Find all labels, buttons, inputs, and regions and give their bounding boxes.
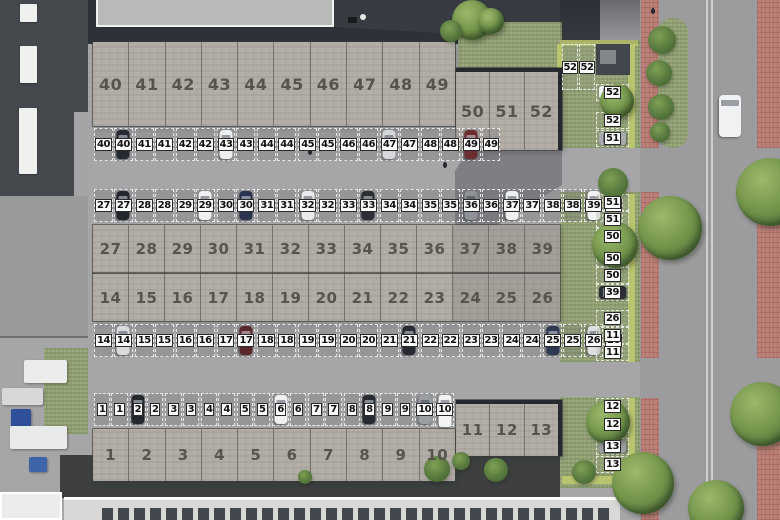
- parking-spot-label: 32: [319, 199, 336, 212]
- unit-label: 32: [280, 240, 302, 258]
- parking-spot-45: 45: [298, 128, 317, 161]
- parking-row-14-26: 1414151516161717181819192020212122222323…: [93, 322, 560, 359]
- unit-label: 38: [496, 240, 518, 258]
- unit-label: 19: [280, 289, 302, 307]
- parking-spot-label: 13: [604, 458, 621, 471]
- solar-panels: [102, 508, 614, 520]
- parking-spot-label: 39: [604, 286, 621, 299]
- unit-label: 28: [136, 240, 158, 258]
- unit-label: 8: [359, 446, 370, 464]
- unit-3: 3: [165, 429, 201, 481]
- parking-spot-label: 23: [483, 334, 500, 347]
- parking-spot-17: 17: [217, 324, 236, 357]
- parking-spot-31: 31: [257, 189, 276, 222]
- unit-21: 21: [344, 274, 380, 321]
- parking-pair-40: 4040: [93, 126, 134, 163]
- parking-spot-label: 30: [237, 199, 254, 212]
- parking-spot-35: 35: [421, 189, 440, 222]
- parking-spot-50: 50: [596, 267, 629, 284]
- parking-spot-label: 28: [136, 199, 153, 212]
- parking-pair-20: 2020: [338, 322, 379, 359]
- parking-spot-5: 5: [254, 393, 270, 426]
- parking-spot-label: 47: [401, 138, 418, 151]
- unit-36: 36: [416, 225, 452, 273]
- unit-label: 17: [208, 289, 230, 307]
- pavement-strip-left: [74, 112, 88, 196]
- parking-spot-label: 27: [95, 199, 112, 212]
- unit-5: 5: [237, 429, 273, 481]
- parking-spot-label: 43: [237, 138, 254, 151]
- parking-pair-7: 77: [307, 391, 343, 428]
- unit-label: 23: [424, 289, 446, 307]
- parking-pair-42: 4242: [175, 126, 216, 163]
- parking-spot-16: 16: [176, 324, 195, 357]
- parking-spot-10: 10: [435, 393, 454, 426]
- parking-spot-52: 52: [562, 44, 578, 90]
- unit-2: 2: [128, 429, 164, 481]
- parking-spot-label: 36: [463, 199, 480, 212]
- parking-pair-25: 2525: [542, 322, 583, 359]
- parking-spot-label: 47: [381, 138, 398, 151]
- parking-pair-44: 4444: [256, 126, 297, 163]
- parking-spot-label: 5: [257, 403, 267, 416]
- parking-spot-label: 42: [197, 138, 214, 151]
- unit-label: 48: [389, 75, 412, 94]
- unit-34: 34: [344, 225, 380, 273]
- parking-spot-5: 5: [237, 393, 253, 426]
- parking-spot-14: 14: [114, 324, 133, 357]
- parking-spot-19: 19: [318, 324, 337, 357]
- parking-spot-7: 7: [325, 393, 341, 426]
- unit-label: 49: [426, 75, 449, 94]
- parking-spot-47: 47: [400, 128, 419, 161]
- parking-spot-label: 11: [604, 329, 621, 342]
- unit-30: 30: [200, 225, 236, 273]
- parking-spot-43: 43: [236, 128, 255, 161]
- parking-spot-label: 10: [436, 403, 453, 416]
- parking-pair-41: 4141: [134, 126, 175, 163]
- parking-pair-5: 55: [236, 391, 272, 428]
- parking-spot-41: 41: [155, 128, 174, 161]
- bush: [648, 94, 674, 120]
- truck-trailer: [19, 108, 37, 174]
- parking-spot-label: 29: [197, 199, 214, 212]
- unit-label: 16: [172, 289, 194, 307]
- unit-label: 10: [426, 446, 448, 464]
- parking-pair-21: 2121: [379, 322, 420, 359]
- parking-spot-41: 41: [135, 128, 154, 161]
- road-center-line: [706, 0, 708, 520]
- parking-spot-label: 12: [604, 418, 621, 431]
- bush: [440, 20, 462, 42]
- unit-label: 9: [396, 446, 407, 464]
- parking-spot-2: 2: [147, 393, 163, 426]
- parking-spot-15: 15: [135, 324, 154, 357]
- unit-label: 46: [317, 75, 340, 94]
- parking-spot-34: 34: [400, 189, 419, 222]
- parking-spot-label: 22: [442, 334, 459, 347]
- parking-pair-19: 1919: [297, 322, 338, 359]
- parking-spot-32: 32: [298, 189, 317, 222]
- parking-spot-label: 33: [360, 199, 377, 212]
- parking-spot-30: 30: [217, 189, 236, 222]
- parking-row-1-10: 1122334455667788991010: [93, 391, 455, 428]
- parking-spot-label: 25: [544, 334, 561, 347]
- parking-spot-4: 4: [218, 393, 234, 426]
- parking-spot-label: 2: [150, 403, 160, 416]
- building-units-27-39: 27282930313233343536373839: [93, 225, 560, 273]
- parking-spot-17: 17: [236, 324, 255, 357]
- parking-spot-label: 17: [218, 334, 235, 347]
- parking-spot-label: 45: [319, 138, 336, 151]
- parking-spot-8: 8: [344, 393, 360, 426]
- unit-label: 12: [496, 421, 518, 439]
- parking-spot-label: 35: [442, 199, 459, 212]
- parking-spot-8: 8: [361, 393, 377, 426]
- parking-spot-1: 1: [111, 393, 127, 426]
- parking-spot-label: 14: [115, 334, 132, 347]
- truck: [29, 457, 47, 472]
- parking-spot-label: 50: [604, 269, 621, 282]
- bush: [572, 460, 596, 484]
- parking-spot-label: 48: [442, 138, 459, 151]
- parking-spot-label: 35: [422, 199, 439, 212]
- parking-spot-label: 18: [258, 334, 275, 347]
- parking-spot-label: 32: [299, 199, 316, 212]
- unit-35: 35: [380, 225, 416, 273]
- parking-spot-51: 51: [596, 130, 629, 147]
- unit-label: 52: [530, 102, 553, 121]
- parking-spot-label: 31: [258, 199, 275, 212]
- parking-spot-24: 24: [522, 324, 541, 357]
- parking-pair-3: 33: [164, 391, 200, 428]
- unit-24: 24: [452, 274, 488, 321]
- unit-label: 20: [316, 289, 338, 307]
- parking-spot-label: 1: [114, 403, 124, 416]
- unit-label: 30: [208, 240, 230, 258]
- parking-spot-label: 52: [562, 61, 579, 74]
- unit-label: 36: [424, 240, 446, 258]
- parking-spot-29: 29: [176, 189, 195, 222]
- unit-label: 29: [172, 240, 194, 258]
- parking-spot-42: 42: [176, 128, 195, 161]
- shadow-top-right: [560, 0, 640, 44]
- unit-label: 44: [244, 75, 267, 94]
- parking-spot-label: 50: [604, 252, 621, 265]
- unit-43: 43: [201, 42, 237, 126]
- parking-spot-label: 50: [604, 230, 621, 243]
- parking-spot-38: 38: [563, 189, 582, 222]
- parking-spot-label: 36: [483, 199, 500, 212]
- bush: [650, 122, 670, 142]
- parking-spot-21: 21: [400, 324, 419, 357]
- unit-label: 2: [141, 446, 152, 464]
- unit-25: 25: [488, 274, 524, 321]
- parking-spot-46: 46: [359, 128, 378, 161]
- roof-unit: [360, 14, 366, 20]
- parking-spot-40: 40: [94, 128, 113, 161]
- parking-spot-45: 45: [318, 128, 337, 161]
- unit-label: 27: [100, 240, 122, 258]
- parking-spot-19: 19: [298, 324, 317, 357]
- parking-spot-label: 6: [275, 403, 285, 416]
- parking-pair-43: 4343: [216, 126, 257, 163]
- unit-9: 9: [382, 429, 418, 481]
- unit-label: 25: [496, 289, 518, 307]
- unit-42: 42: [165, 42, 201, 126]
- parking-spot-18: 18: [277, 324, 296, 357]
- parking-spot-6: 6: [290, 393, 306, 426]
- parking-row-27-39: 2727282829293030313132323333343435353636…: [93, 187, 560, 224]
- parking-spot-14: 14: [94, 324, 113, 357]
- unit-46: 46: [310, 42, 346, 126]
- parking-pair-10: 1010: [414, 391, 455, 428]
- parking-pair-29: 2929: [175, 187, 216, 224]
- unit-label: 41: [135, 75, 158, 94]
- unit-label: 35: [388, 240, 410, 258]
- bush: [646, 60, 672, 86]
- parking-pair-2: 22: [129, 391, 165, 428]
- parking-spot-label: 48: [422, 138, 439, 151]
- parking-spot-label: 7: [328, 403, 338, 416]
- parking-spot-label: 17: [237, 334, 254, 347]
- parking-spot-label: 1: [97, 403, 107, 416]
- building-units-14-26: 14151617181920212223242526: [93, 273, 560, 321]
- parking-spot-label: 3: [186, 403, 196, 416]
- parking-spot-47: 47: [380, 128, 399, 161]
- unit-49: 49: [419, 42, 455, 126]
- unit-14: 14: [93, 274, 128, 321]
- unit-label: 37: [460, 240, 482, 258]
- parking-spot-label: 20: [340, 334, 357, 347]
- parking-spot-26: 26: [596, 310, 629, 327]
- unit-22: 22: [380, 274, 416, 321]
- unit-37: 37: [452, 225, 488, 273]
- parking-spot-32: 32: [318, 189, 337, 222]
- unit-label: 50: [461, 102, 484, 121]
- unit-12: 12: [489, 404, 523, 456]
- parking-spot-label: 38: [544, 199, 561, 212]
- parking-pair-15: 1515: [134, 322, 175, 359]
- parking-spot-34: 34: [380, 189, 399, 222]
- garden-shed: [596, 44, 630, 75]
- parking-spot-label: 27: [115, 199, 132, 212]
- unit-20: 20: [308, 274, 344, 321]
- unit-label: 18: [244, 289, 266, 307]
- unit-label: 26: [532, 289, 554, 307]
- unit-label: 47: [353, 75, 376, 94]
- parking-spot-label: 44: [258, 138, 275, 151]
- parking-spot-30: 30: [236, 189, 255, 222]
- aerial-site-plan: 4041424344454647484950515227282930313233…: [0, 0, 780, 520]
- parking-spot-label: 33: [340, 199, 357, 212]
- parking-pair-4: 44: [200, 391, 236, 428]
- parking-spot-label: 52: [604, 86, 621, 99]
- unit-45: 45: [273, 42, 309, 126]
- unit-label: 3: [178, 446, 189, 464]
- parking-pair-16: 1616: [175, 322, 216, 359]
- unit-8: 8: [346, 429, 382, 481]
- parking-spot-23: 23: [482, 324, 501, 357]
- unit-label: 33: [316, 240, 338, 258]
- unit-13: 13: [524, 404, 558, 456]
- parking-spot-10: 10: [415, 393, 434, 426]
- parking-spot-1: 1: [94, 393, 110, 426]
- parking-spot-22: 22: [421, 324, 440, 357]
- car: [719, 95, 741, 137]
- parking-pair-6: 66: [271, 391, 307, 428]
- unit-15: 15: [128, 274, 164, 321]
- parking-spot-label: 15: [136, 334, 153, 347]
- parking-spot-label: 42: [177, 138, 194, 151]
- parking-pair-8: 88: [343, 391, 379, 428]
- unit-32: 32: [272, 225, 308, 273]
- unit-7: 7: [310, 429, 346, 481]
- parking-spot-label: 2: [133, 403, 143, 416]
- parking-pair-46: 4646: [338, 126, 379, 163]
- unit-label: 24: [460, 289, 482, 307]
- parking-pair-1: 11: [93, 391, 129, 428]
- unit-29: 29: [164, 225, 200, 273]
- parking-spot-label: 13: [604, 440, 621, 453]
- parking-spot-46: 46: [339, 128, 358, 161]
- parking-spot-label: 3: [168, 403, 178, 416]
- parking-spot-label: 20: [360, 334, 377, 347]
- parking-spot-label: 52: [604, 114, 621, 127]
- factory-roof-left: [0, 196, 88, 338]
- parking-spot-label: 12: [604, 400, 621, 413]
- hedge: [628, 194, 635, 362]
- parking-spot-20: 20: [359, 324, 378, 357]
- parking-spot-18: 18: [257, 324, 276, 357]
- parking-spot-25: 25: [543, 324, 562, 357]
- parking-pair-18: 1818: [256, 322, 297, 359]
- unit-label: 34: [352, 240, 374, 258]
- parking-pair-48: 4848: [420, 126, 461, 163]
- parking-spot-label: 29: [177, 199, 194, 212]
- bush: [598, 168, 628, 198]
- parking-spot-label: 41: [156, 138, 173, 151]
- parking-spot-label: 43: [218, 138, 235, 151]
- parking-spot-label: 34: [401, 199, 418, 212]
- parking-spot-label: 14: [95, 334, 112, 347]
- parking-spot-44: 44: [257, 128, 276, 161]
- parking-spot-label: 6: [293, 403, 303, 416]
- parking-spot-43: 43: [217, 128, 236, 161]
- parking-spot-36: 36: [482, 189, 501, 222]
- unit-label: 31: [244, 240, 266, 258]
- road-center-line: [711, 0, 713, 520]
- parking-spot-label: 11: [604, 346, 621, 359]
- parking-spot-37: 37: [502, 189, 521, 222]
- parking-spot-label: 28: [156, 199, 173, 212]
- unit-19: 19: [272, 274, 308, 321]
- parking-spot-20: 20: [339, 324, 358, 357]
- car-windshield: [721, 100, 739, 106]
- parking-pair-23: 2323: [461, 322, 502, 359]
- parking-spot-label: 21: [381, 334, 398, 347]
- parking-spot-label: 49: [463, 138, 480, 151]
- tree: [612, 452, 674, 514]
- parking-spot-44: 44: [277, 128, 296, 161]
- parking-spot-label: 51: [604, 213, 621, 226]
- parking-spot-label: 38: [564, 199, 581, 212]
- parking-spot-2: 2: [130, 393, 146, 426]
- parking-pair-17: 1717: [216, 322, 257, 359]
- parking-spot-35: 35: [441, 189, 460, 222]
- parking-pair-36: 3636: [461, 187, 502, 224]
- unit-28: 28: [128, 225, 164, 273]
- parking-pair-35: 3535: [420, 187, 461, 224]
- unit-4: 4: [201, 429, 237, 481]
- unit-label: 15: [136, 289, 158, 307]
- unit-44: 44: [237, 42, 273, 126]
- parking-pair-24: 2424: [501, 322, 542, 359]
- parking-spot-3: 3: [183, 393, 199, 426]
- unit-label: 40: [99, 75, 122, 94]
- parking-pair-27: 2727: [93, 187, 134, 224]
- building-units-11-13: 111213: [456, 400, 562, 456]
- unit-52: 52: [524, 72, 558, 150]
- parking-spot-label: 31: [278, 199, 295, 212]
- parking-spot-48: 48: [421, 128, 440, 161]
- pedestrian: [443, 162, 447, 168]
- parking-spot-label: 10: [416, 403, 433, 416]
- bush: [452, 452, 470, 470]
- unit-label: 7: [323, 446, 334, 464]
- unit-label: 45: [281, 75, 304, 94]
- unit-label: 22: [388, 289, 410, 307]
- unit-41: 41: [128, 42, 164, 126]
- parking-spot-label: 44: [278, 138, 295, 151]
- parking-spot-6: 6: [272, 393, 288, 426]
- parking-spot-37: 37: [522, 189, 541, 222]
- unit-label: 5: [250, 446, 261, 464]
- parking-pair-22: 2222: [420, 322, 461, 359]
- parking-spot-label: 7: [311, 403, 321, 416]
- parking-spot-label: 9: [382, 403, 392, 416]
- unit-label: 43: [208, 75, 231, 94]
- parking-spot-28: 28: [155, 189, 174, 222]
- unit-40: 40: [93, 42, 128, 126]
- pedestrian: [651, 8, 655, 14]
- parking-spot-9: 9: [397, 393, 413, 426]
- parking-spot-label: 15: [156, 334, 173, 347]
- unit-26: 26: [524, 274, 560, 321]
- parking-spot-49: 49: [462, 128, 481, 161]
- parking-spot-38: 38: [543, 189, 562, 222]
- unit-31: 31: [236, 225, 272, 273]
- unit-label: 51: [495, 102, 518, 121]
- parking-spot-label: 49: [483, 138, 500, 151]
- truck: [10, 426, 67, 449]
- parking-spot-label: 5: [240, 403, 250, 416]
- parking-spot-28: 28: [135, 189, 154, 222]
- parking-spot-7: 7: [308, 393, 324, 426]
- parking-spot-label: 52: [579, 61, 596, 74]
- tree: [478, 8, 504, 34]
- parking-spot-16: 16: [196, 324, 215, 357]
- parking-spot-label: 40: [115, 138, 132, 151]
- parking-spot-label: 46: [340, 138, 357, 151]
- building-units-1-10: 12345678910: [93, 429, 455, 481]
- parking-spot-36: 36: [462, 189, 481, 222]
- unit-label: 6: [287, 446, 298, 464]
- unit-label: 13: [530, 421, 552, 439]
- parking-spot-label: 21: [401, 334, 418, 347]
- parking-pair-9: 99: [379, 391, 415, 428]
- unit-18: 18: [236, 274, 272, 321]
